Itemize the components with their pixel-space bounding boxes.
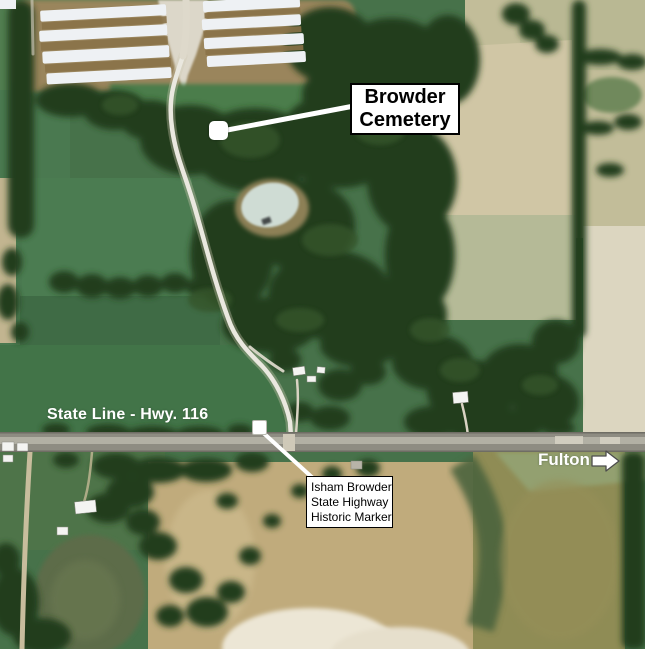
aerial-photo bbox=[0, 0, 645, 649]
cemetery-label-line2: Cemetery bbox=[359, 109, 450, 132]
cemetery-location-marker bbox=[209, 121, 228, 140]
cemetery-label-line1: Browder bbox=[364, 86, 445, 109]
fulton-arrow-icon bbox=[591, 449, 621, 473]
historic-marker-location-marker bbox=[252, 420, 267, 435]
historic-marker-label-line3: Historic Marker bbox=[311, 510, 392, 525]
state-line-highway-label: State Line - Hwy. 116 bbox=[47, 406, 208, 424]
cemetery-label: Browder Cemetery bbox=[350, 83, 460, 135]
historic-marker-label-line1: Isham Browder bbox=[311, 480, 392, 495]
fulton-direction-label: Fulton bbox=[538, 450, 590, 470]
state-highway bbox=[0, 432, 645, 452]
aerial-map: Browder Cemetery State Line - Hwy. 116 F… bbox=[0, 0, 645, 649]
historic-marker-label: Isham Browder State Highway Historic Mar… bbox=[306, 476, 393, 528]
corner-building bbox=[0, 0, 16, 9]
historic-marker-label-line2: State Highway bbox=[311, 495, 392, 510]
